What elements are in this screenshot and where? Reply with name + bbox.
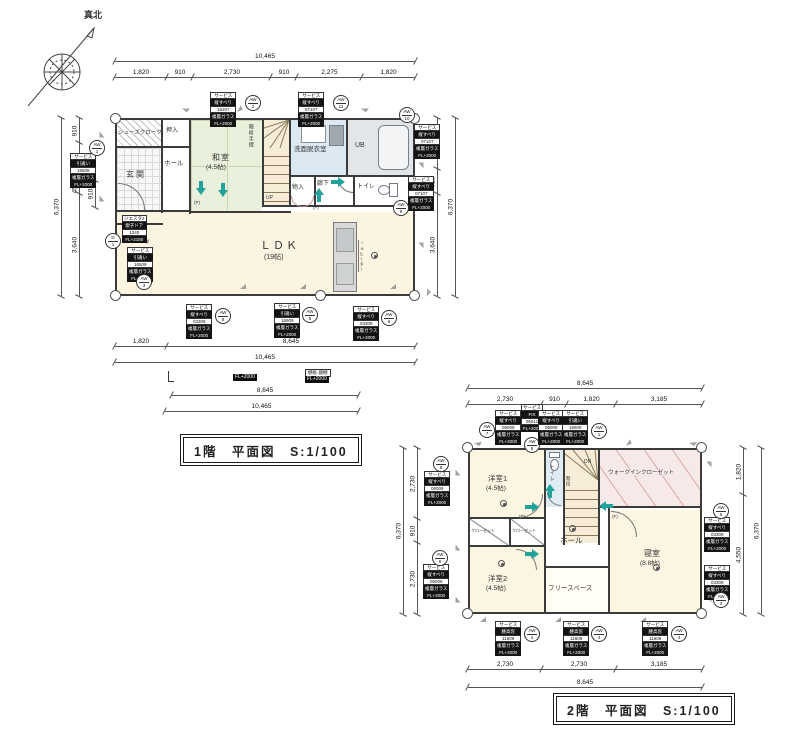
window-label-line: 引違い bbox=[127, 254, 153, 261]
window-label-line: FL+2000 bbox=[538, 438, 564, 445]
dim-value: 2,275 bbox=[297, 68, 362, 78]
room-label-yoshitsu2-size: (4.5帖) bbox=[486, 585, 506, 592]
window-label-line: サービス bbox=[353, 306, 379, 313]
dim-value: 1,820 bbox=[362, 68, 415, 78]
dim-value: 6,370 bbox=[447, 199, 454, 215]
window-label-line: 16207 bbox=[210, 106, 236, 113]
f1-dim-top-total: 10,465 bbox=[115, 52, 415, 62]
washer-fixture bbox=[301, 125, 326, 143]
room-label-yoshitsu1-size: (4.5帖) bbox=[486, 485, 506, 492]
window-label: サービス腰高窓11609複層ガラスFL+2000 bbox=[642, 621, 668, 656]
window-label-line: FL+2000 bbox=[495, 649, 521, 656]
room-label-free: フリースペース bbox=[548, 585, 592, 592]
window-badge-icon: AW11 bbox=[333, 95, 349, 111]
ceiling-symbol-ldk bbox=[371, 252, 378, 259]
room-label-yoshitsu2: 洋室2 bbox=[488, 575, 507, 584]
window-label-line: 腰高窓 bbox=[642, 628, 668, 635]
window-label: サービス腰高窓11609複層ガラスFL+2000 bbox=[495, 621, 521, 656]
leader-tick bbox=[168, 371, 174, 382]
window-label-line: FL+2000 bbox=[186, 332, 212, 339]
window-label-line: サービス bbox=[495, 621, 521, 628]
window-label: ジエスタ2親子ドア1240FL+2180 bbox=[122, 215, 147, 243]
window-label-line: 16509 bbox=[70, 167, 96, 174]
flow-arrow-washitsu-down bbox=[218, 182, 229, 197]
window-label-line: 縦すべり bbox=[408, 183, 434, 190]
room-label-hall2: ホール bbox=[560, 537, 583, 546]
window-label-line: サービス bbox=[642, 621, 668, 628]
dim-value: 3,640 bbox=[71, 237, 78, 253]
dim-value: 1,820 bbox=[735, 463, 742, 479]
dim-value: 4,550 bbox=[735, 546, 742, 562]
f1-dim-bottom-total: 10,465 bbox=[115, 353, 415, 363]
level-mark-icon bbox=[456, 470, 461, 476]
dim-value: 2,730 bbox=[468, 660, 542, 670]
window-label-line: FL+2000 bbox=[423, 592, 449, 599]
window-label-line: 03309 bbox=[704, 579, 730, 586]
level-mark-icon bbox=[390, 284, 396, 289]
room-label-toilet1: トイレ bbox=[357, 184, 375, 191]
window-label: サービス縦すべり06009複層ガラスFL+2000 bbox=[424, 471, 450, 506]
f1-dim-right-total: 6,370 bbox=[446, 118, 456, 296]
window-label-line: サービス bbox=[424, 471, 450, 478]
dim-value: 3,640 bbox=[429, 237, 436, 253]
window-label-line: サービス bbox=[298, 92, 324, 99]
toilet-fixture-1f bbox=[389, 183, 398, 197]
dim-value: 8,645 bbox=[468, 678, 702, 688]
dim-value: 2,730 bbox=[193, 68, 271, 78]
window-badge-icon: AW3 bbox=[136, 274, 152, 290]
flow-arrow-2f-up bbox=[544, 484, 555, 499]
window-label-line: 複層ガラス bbox=[495, 431, 521, 438]
window-label-line: 親子ドア bbox=[122, 222, 147, 229]
window-label-line: FL+2000 bbox=[353, 334, 379, 341]
f2-dim-bottom-segs: 2,730 2,730 3,185 bbox=[468, 660, 702, 670]
window-label-line: FL+2000 bbox=[414, 152, 440, 159]
room-label-stairs2: 階段 bbox=[566, 476, 571, 487]
window-label-line: サービス bbox=[562, 410, 588, 417]
level-mark-icon bbox=[707, 462, 712, 468]
room-label-mono: 物入 bbox=[292, 185, 304, 192]
f2-dim-right-segs: 1,820 4,550 bbox=[734, 448, 744, 614]
window-badge-icon: AW8 bbox=[433, 456, 449, 472]
level-mark-icon bbox=[456, 545, 461, 551]
window-label: サービス縦すべり07107複層ガラスFL+2000 bbox=[408, 176, 434, 211]
window-label-line: 複層ガラス bbox=[495, 642, 521, 649]
window-label-line: ジエスタ2 bbox=[122, 215, 147, 222]
dim-value: 10,465 bbox=[165, 402, 358, 412]
kitchen-sink bbox=[336, 228, 354, 252]
marker-p-2f: (P) bbox=[519, 514, 525, 519]
f1-dim-left-total: 6,370 bbox=[52, 118, 62, 296]
window-badge-icon: AW8 bbox=[215, 308, 231, 324]
window-label-line: 複層ガラス bbox=[642, 642, 668, 649]
dim-value: 6,370 bbox=[753, 523, 760, 539]
ceiling-symbol-yo2 bbox=[498, 560, 505, 567]
window-label-line: 縦すべり bbox=[424, 478, 450, 485]
window-badge-icon: AW2 bbox=[245, 95, 261, 111]
room-label-yoshitsu1: 洋室1 bbox=[488, 475, 507, 484]
toilet-tank-2f bbox=[549, 452, 560, 458]
window-label-line: 複層ガラス bbox=[408, 197, 434, 204]
dim-value: 10,465 bbox=[115, 353, 415, 363]
window-label-line: 複層ガラス bbox=[562, 431, 588, 438]
dim-value: 1,820 bbox=[115, 68, 167, 78]
window-label-line: 06009 bbox=[424, 485, 450, 492]
window-label-line: 07107 bbox=[298, 106, 324, 113]
dim-value: 10,465 bbox=[115, 52, 415, 62]
room-label-toilet2: トイレ bbox=[548, 464, 554, 482]
window-label: サービス腰高窓11609複層ガラスFL+2000 bbox=[563, 621, 589, 656]
window-label-line: 11609 bbox=[495, 635, 521, 642]
window-label-line: FL+2000 bbox=[298, 120, 324, 127]
dim-value: 2,730 bbox=[409, 475, 416, 491]
window-badge-icon: AW6 bbox=[381, 310, 397, 326]
window-label-line: サービス bbox=[563, 621, 589, 628]
flow-arrow-rouka-right bbox=[330, 176, 345, 187]
window-label-line: 引違い bbox=[70, 160, 96, 167]
window-label-line: 16609 bbox=[562, 424, 588, 431]
dim-value: 8,645 bbox=[468, 379, 702, 389]
stairs-up-label: UP bbox=[266, 196, 273, 202]
window-label-line: サービス bbox=[127, 247, 153, 254]
window-label-line: FL+2180 bbox=[122, 236, 147, 243]
window-label-line: サービス bbox=[186, 304, 212, 311]
window-label-line: FL+2000 bbox=[495, 438, 521, 445]
fl-height-label: FL+2000 bbox=[233, 374, 257, 381]
level-mark-icon bbox=[240, 284, 246, 289]
window-label-line: 11609 bbox=[642, 635, 668, 642]
window-label-line: 複層ガラス bbox=[210, 113, 236, 120]
f1-sub-dim-8645: 8,645 bbox=[172, 386, 358, 396]
window-label-line: 複層ガラス bbox=[298, 113, 324, 120]
window-label-line: 縦すべり bbox=[704, 572, 730, 579]
window-label-line: 複層ガラス bbox=[414, 145, 440, 152]
window-label: サービス縦すべり03309複層ガラスFL+2000 bbox=[704, 517, 730, 552]
room-label-wic: ウォークインクローゼット bbox=[608, 470, 674, 476]
marker-f-2f: (F) bbox=[612, 514, 618, 519]
window-label-line: サービス bbox=[408, 176, 434, 183]
window-label-line: サービス bbox=[538, 410, 564, 417]
window-label-line: 縦すべり bbox=[298, 99, 324, 106]
window-label: サービス縦すべり03309複層ガラスFL+2000 bbox=[353, 306, 379, 341]
dim-value: 910 bbox=[271, 68, 297, 78]
window-label-line: 複層ガラス bbox=[424, 492, 450, 499]
dim-value: 910 bbox=[71, 125, 78, 136]
f2-dim-top-segs: 2,730 910 1,820 3,185 bbox=[468, 395, 702, 405]
window-label: サービス縦すべり07107複層ガラスFL+2000 bbox=[414, 124, 440, 159]
room-label-genkan: 玄関 bbox=[126, 170, 146, 179]
window-label-line: 縦すべり bbox=[353, 313, 379, 320]
room-label-washitsu-size: (4.5帖) bbox=[206, 164, 226, 171]
floor-plan-sheet: 真北 bbox=[0, 0, 800, 749]
window-label-line: 腰高窓 bbox=[495, 628, 521, 635]
room-label-oshiire: 押入 bbox=[166, 128, 178, 135]
f2-dim-top-total: 8,645 bbox=[468, 379, 702, 389]
window-label-line: FL+2000 bbox=[408, 204, 434, 211]
room-label-senmen: 洗面脱衣室 bbox=[294, 146, 327, 153]
window-label-line: 16509 bbox=[127, 261, 153, 268]
level-mark-icon bbox=[624, 439, 631, 446]
bathtub-fixture bbox=[378, 125, 409, 170]
dim-value: 6,370 bbox=[395, 523, 402, 539]
ih-heater-label: IHヒーター bbox=[358, 240, 364, 272]
window-label-line: FL+2000 bbox=[642, 649, 668, 656]
window-label-line: FL+2000 bbox=[563, 649, 589, 656]
marker-p-1f: (P) bbox=[194, 200, 200, 205]
f2-dim-left-total: 6,370 bbox=[394, 448, 404, 614]
shelf-fl-label: FL+2000 bbox=[305, 376, 329, 383]
window-label-line: FL+2000 bbox=[562, 438, 588, 445]
flow-arrow-rouka-up bbox=[313, 188, 324, 203]
level-mark-icon bbox=[456, 597, 461, 603]
window-badge-icon: AW1 bbox=[591, 423, 607, 439]
dim-value: 8,645 bbox=[172, 386, 358, 396]
window-label: サービス縦すべり06009複層ガラスFL+2000 bbox=[423, 564, 449, 599]
dim-value: 6,370 bbox=[53, 199, 60, 215]
window-label-line: 03309 bbox=[353, 320, 379, 327]
window-badge-icon: AW4 bbox=[671, 626, 687, 642]
window-label-line: 複層ガラス bbox=[353, 327, 379, 334]
dim-value: 2,730 bbox=[542, 660, 616, 670]
window-label-line: 縦すべり bbox=[210, 99, 236, 106]
flow-arrow-2f-right2 bbox=[524, 548, 539, 559]
window-label-line: 07107 bbox=[408, 190, 434, 197]
dim-value: 910 bbox=[87, 189, 94, 200]
level-mark-icon bbox=[182, 105, 190, 113]
window-label: サービス縦すべり16207複層ガラスFL+2000 bbox=[210, 92, 236, 127]
window-label: サービス引違い16509複層ガラスFL+2000 bbox=[70, 153, 96, 188]
ceiling-symbol-hall2 bbox=[569, 525, 576, 532]
room-label-ldk: ＬＤＫ bbox=[260, 240, 299, 253]
window-label: サービス縦すべり06009複層ガラスFL+2000 bbox=[538, 410, 564, 445]
f2-dim-bottom-total: 8,645 bbox=[468, 678, 702, 688]
window-label-line: 縦すべり bbox=[414, 131, 440, 138]
floor2-title: 2階 平面図 S:1/100 bbox=[556, 696, 732, 722]
window-label-line: 縦すべり bbox=[538, 417, 564, 424]
level-mark-icon bbox=[480, 617, 486, 622]
level-mark-icon bbox=[100, 196, 105, 202]
window-label-line: サービス bbox=[274, 303, 300, 310]
window-label-line: 複層ガラス bbox=[538, 431, 564, 438]
flow-arrow-hall-down bbox=[196, 180, 207, 195]
window-badge-icon: AW1 bbox=[89, 140, 105, 156]
window-label-line: 縦すべり bbox=[186, 311, 212, 318]
window-label-line: FL+2000 bbox=[704, 545, 730, 552]
window-label-line: 複層ガラス bbox=[70, 174, 96, 181]
window-label: サービス引違い16609複層ガラスFL+2000 bbox=[562, 410, 588, 445]
building-outline-1f bbox=[115, 118, 415, 296]
window-label-line: FL+2000 bbox=[70, 181, 96, 188]
window-label-line: 腰高窓 bbox=[563, 628, 589, 635]
flow-arrow-2f-right1 bbox=[524, 501, 539, 512]
window-label-line: 複層ガラス bbox=[704, 538, 730, 545]
window-label: サービス縦すべり03309複層ガラスFL+2000 bbox=[186, 304, 212, 339]
window-badge-icon: AW9 bbox=[393, 200, 409, 216]
window-badge-icon: AW7 bbox=[479, 422, 495, 438]
dim-value: 1,820 bbox=[115, 337, 167, 347]
window-label-line: 縦すべり bbox=[704, 524, 730, 531]
dim-value: 910 bbox=[409, 526, 416, 537]
window-badge-icon: AW5 bbox=[302, 307, 318, 323]
f1-dim-top-segs: 1,820 910 2,730 910 2,275 1,820 bbox=[115, 68, 415, 78]
kitchen-stove bbox=[336, 263, 354, 285]
window-badge-icon: AW6 bbox=[432, 550, 448, 566]
level-mark-icon bbox=[235, 105, 242, 112]
window-label-line: FL+2000 bbox=[424, 499, 450, 506]
window-badge-icon: AW4 bbox=[591, 626, 607, 642]
window-badge-icon: AW5 bbox=[713, 503, 729, 519]
window-label-line: 縦すべり bbox=[423, 571, 449, 578]
window-label-line: 06009 bbox=[538, 424, 564, 431]
window-label-line: 06009 bbox=[423, 578, 449, 585]
level-mark-icon bbox=[419, 243, 424, 249]
window-badge-icon: AW10 bbox=[399, 107, 415, 123]
room-label-washitsu: 和室 bbox=[212, 153, 230, 162]
window-label-line: サービス bbox=[495, 410, 521, 417]
room-label-ldk-size: (19帖) bbox=[264, 254, 283, 262]
window-label-line: サービス bbox=[704, 565, 730, 572]
window-label-line: 引違い bbox=[562, 417, 588, 424]
window-label-line: 03309 bbox=[186, 318, 212, 325]
window-label-line: 11609 bbox=[563, 635, 589, 642]
window-label-line: 縦すべり bbox=[495, 417, 521, 424]
stairs-dn-label: DN bbox=[584, 460, 591, 466]
dim-value: 3,185 bbox=[616, 660, 702, 670]
window-label-line: FL+2000 bbox=[274, 331, 300, 338]
room-label-handrail: 階段手摺 bbox=[247, 124, 253, 148]
room-label-hall1: ホール bbox=[164, 160, 184, 167]
room-label-ub: UB bbox=[355, 142, 365, 150]
room-label-closet1: クローゼット bbox=[471, 529, 495, 534]
window-label-line: 06009 bbox=[495, 424, 521, 431]
window-badge-icon: D1 bbox=[105, 233, 121, 249]
compass-icon bbox=[20, 14, 112, 112]
level-mark-icon bbox=[419, 163, 424, 169]
window-label-line: 1240 bbox=[122, 229, 147, 236]
room-label-rouka: 廊下 bbox=[317, 181, 329, 188]
window-label: サービス縦すべり07107複層ガラスFL+2000 bbox=[298, 92, 324, 127]
flow-arrow-2f-left bbox=[599, 501, 614, 512]
level-mark-icon bbox=[100, 132, 105, 138]
window-label-line: 複層ガラス bbox=[186, 325, 212, 332]
room-label-shoes: シューズクローク bbox=[118, 130, 162, 136]
level-mark-icon bbox=[474, 439, 482, 446]
toilet-bowl-1f bbox=[378, 185, 390, 195]
window-label-line: FL+2000 bbox=[210, 120, 236, 127]
ceiling-symbol-bed bbox=[653, 564, 660, 571]
dim-value: 910 bbox=[542, 395, 567, 405]
window-badge-icon: AW3 bbox=[713, 592, 729, 608]
window-label-line: 複層ガラス bbox=[423, 585, 449, 592]
level-mark-icon bbox=[300, 284, 306, 289]
dim-value: 1,820 bbox=[567, 395, 616, 405]
level-mark-icon bbox=[361, 105, 369, 113]
f1-dim-left-segs: 910 1,365 455 3,640 bbox=[70, 118, 80, 296]
vanity-fixture bbox=[329, 125, 344, 146]
marker-f-1f: (F) bbox=[313, 205, 319, 210]
level-mark-icon bbox=[555, 617, 561, 622]
f1-sub-dim-10465: 10,465 bbox=[165, 402, 358, 412]
window-label-line: 07107 bbox=[414, 138, 440, 145]
window-label-line: 引違い bbox=[274, 310, 300, 317]
window-label-line: 03309 bbox=[704, 531, 730, 538]
window-label-line: 16909 bbox=[274, 317, 300, 324]
window-label-line: サービス bbox=[210, 92, 236, 99]
f2-dim-left-segs: 2,730 910 2,730 bbox=[408, 448, 418, 614]
dim-value: 2,730 bbox=[409, 570, 416, 586]
window-badge-icon: AW4 bbox=[524, 626, 540, 642]
window-label-line: サービス bbox=[414, 124, 440, 131]
true-north-label: 真北 bbox=[84, 10, 102, 20]
room-label-bedroom: 寝室 bbox=[644, 549, 660, 558]
window-label-line: 複層ガラス bbox=[274, 324, 300, 331]
window-label-line: 複層ガラス bbox=[563, 642, 589, 649]
room-label-closet2: クローゼット bbox=[512, 529, 536, 534]
dim-value: 910 bbox=[167, 68, 193, 78]
window-label: サービス縦すべり06009複層ガラスFL+2000 bbox=[495, 410, 521, 445]
dim-value: 3,185 bbox=[616, 395, 702, 405]
f2-dim-right-total: 6,370 bbox=[752, 448, 762, 614]
floor1-title: 1階 平面図 S:1/100 bbox=[183, 437, 359, 463]
ceiling-symbol-yo1 bbox=[500, 500, 507, 507]
window-label: サービス引違い16909複層ガラスFL+2000 bbox=[274, 303, 300, 338]
